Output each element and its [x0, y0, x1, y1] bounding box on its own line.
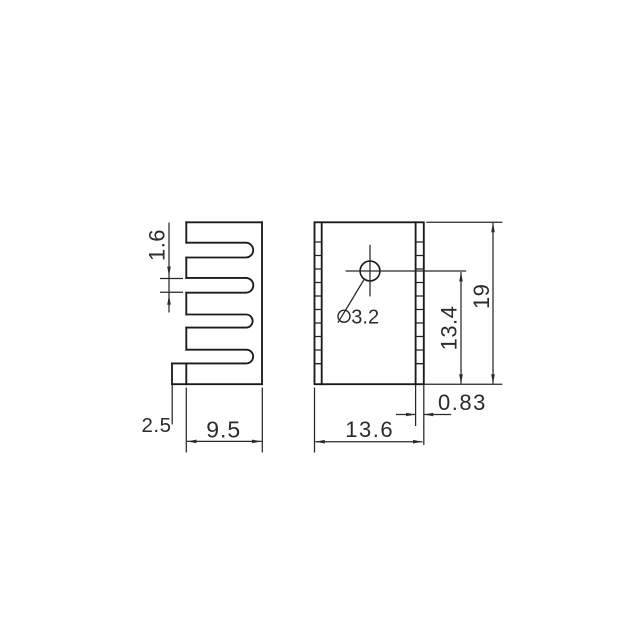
svg-text:2.5: 2.5	[142, 414, 172, 437]
svg-text:1.6: 1.6	[145, 229, 170, 261]
svg-text:19: 19	[469, 284, 494, 309]
svg-text:9.5: 9.5	[206, 417, 241, 443]
svg-text:3.2: 3.2	[351, 307, 379, 329]
svg-text:0.83: 0.83	[438, 390, 487, 415]
svg-text:13.6: 13.6	[345, 417, 394, 442]
svg-text:13.4: 13.4	[437, 306, 462, 351]
